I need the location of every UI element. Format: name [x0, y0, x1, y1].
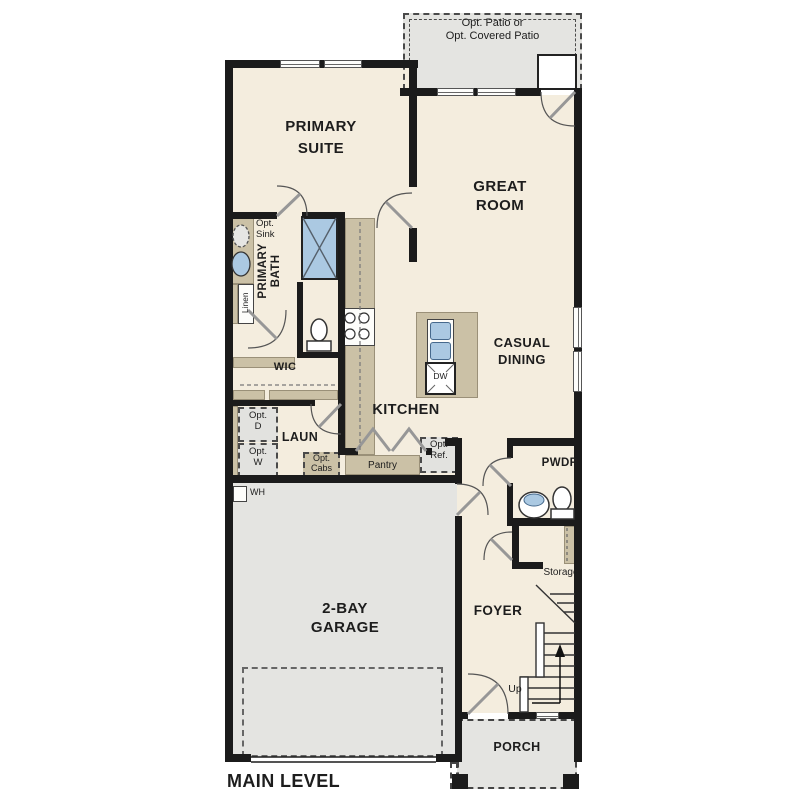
wall-toilet-nook-vertical [297, 282, 303, 358]
garage-label-line2: GARAGE [240, 620, 450, 637]
wall-left [225, 60, 233, 762]
shower [301, 216, 338, 280]
kitchen-label: KITCHEN [351, 402, 461, 418]
laundry-label: LAUN [271, 430, 329, 444]
porch-post-left [452, 774, 468, 789]
dishwasher-label: DW [426, 372, 455, 382]
wall-garage-bottom-left [225, 754, 251, 762]
wall-stair-west [512, 526, 519, 564]
window-greatroom-2 [477, 88, 516, 96]
window-foyer-front [536, 712, 559, 719]
garage-door-recess-outline [242, 667, 443, 757]
opt-patio-label-line2: Opt. Covered Patio [403, 30, 582, 42]
stove [341, 308, 375, 346]
linen-label: Linen [241, 286, 251, 320]
opt-washer-label-line2: W [240, 458, 276, 469]
wall-toilet-nook-horizontal [297, 352, 340, 358]
wall-laundry-top-stub [341, 400, 345, 406]
wall-garage-top [225, 475, 462, 483]
wall-pwdr-bottom [507, 518, 582, 526]
wall-suite-great-divider [409, 60, 417, 187]
wic-south-wall-a [233, 390, 265, 400]
wall-pwdr-top [507, 438, 582, 446]
casual-dining-label-line2: DINING [462, 353, 582, 368]
window-suite-1 [280, 60, 320, 68]
wall-garage-right-lower [455, 516, 462, 762]
wall-pwdr-left-upper [507, 446, 513, 458]
water-heater-box [233, 486, 247, 502]
garage-label-line1: 2-BAY [240, 601, 450, 618]
primary-bath-label-line2: BATH [270, 235, 283, 307]
window-mullion [438, 92, 473, 93]
floor-plan: Opt. Patio or Opt. Covered Patio PRIMARY… [0, 0, 810, 810]
water-heater-label: WH [250, 487, 265, 497]
wall-suite-great-divider-stub [409, 228, 417, 262]
opt-patio-label-line1: Opt. Patio or [403, 17, 582, 29]
wall-garage-bottom-right [436, 754, 462, 762]
primary-bath-label-line1: PRIMARY [257, 235, 270, 307]
wall-front-b [508, 712, 536, 719]
wall-front-a [455, 712, 468, 719]
opt-ref-label-line2: Ref. [421, 451, 457, 462]
opt-dryer-label-line2: D [240, 422, 276, 433]
garage-door-lines [251, 757, 436, 762]
wall-laundry-top [225, 400, 315, 406]
storage-label: Storage [537, 567, 585, 578]
casual-dining-label-line1: CASUAL [462, 336, 582, 351]
porch-post-right [563, 774, 579, 789]
wall-kitchen-south-left [340, 448, 358, 455]
window-mullion [281, 64, 319, 65]
fireplace-chase [537, 54, 577, 90]
up-label: Up [500, 684, 530, 696]
pantry-label: Pantry [345, 460, 420, 471]
primary-suite-label-line2: SUITE [233, 141, 409, 158]
foyer-label: FOYER [455, 603, 541, 618]
great-room-label-line1: GREAT [420, 179, 580, 196]
opt-cabs-label-line1: Opt. [304, 453, 339, 463]
window-greatroom-1 [437, 88, 474, 96]
primary-suite-label-line1: PRIMARY [233, 119, 409, 136]
island-sink-basin-top [430, 322, 451, 340]
window-suite-2 [324, 60, 362, 68]
opt-cabs-label-line2: Cabs [304, 463, 339, 473]
wall-pwdr-left-lower [507, 483, 513, 518]
wic-label: WIC [257, 361, 313, 373]
great-room-label-line2: ROOM [420, 198, 580, 215]
porch-outline [457, 719, 577, 789]
primary-bath-label: PRIMARY BATH [257, 235, 283, 307]
porch-label: PORCH [467, 740, 567, 754]
wall-front-c [558, 712, 582, 719]
wall-suite-top [225, 60, 418, 68]
window-mullion [478, 92, 515, 93]
window-mullion [325, 64, 361, 65]
wic-south-wall-b [269, 390, 338, 400]
island-sink-basin-bottom [430, 342, 451, 360]
main-level-title: MAIN LEVEL [227, 771, 340, 791]
wall-bath-kitchen-divider [338, 212, 345, 455]
pwdr-label: PWDR [530, 457, 590, 470]
opt-sink-label-line2: Sink [256, 230, 274, 241]
window-mullion [537, 716, 558, 717]
